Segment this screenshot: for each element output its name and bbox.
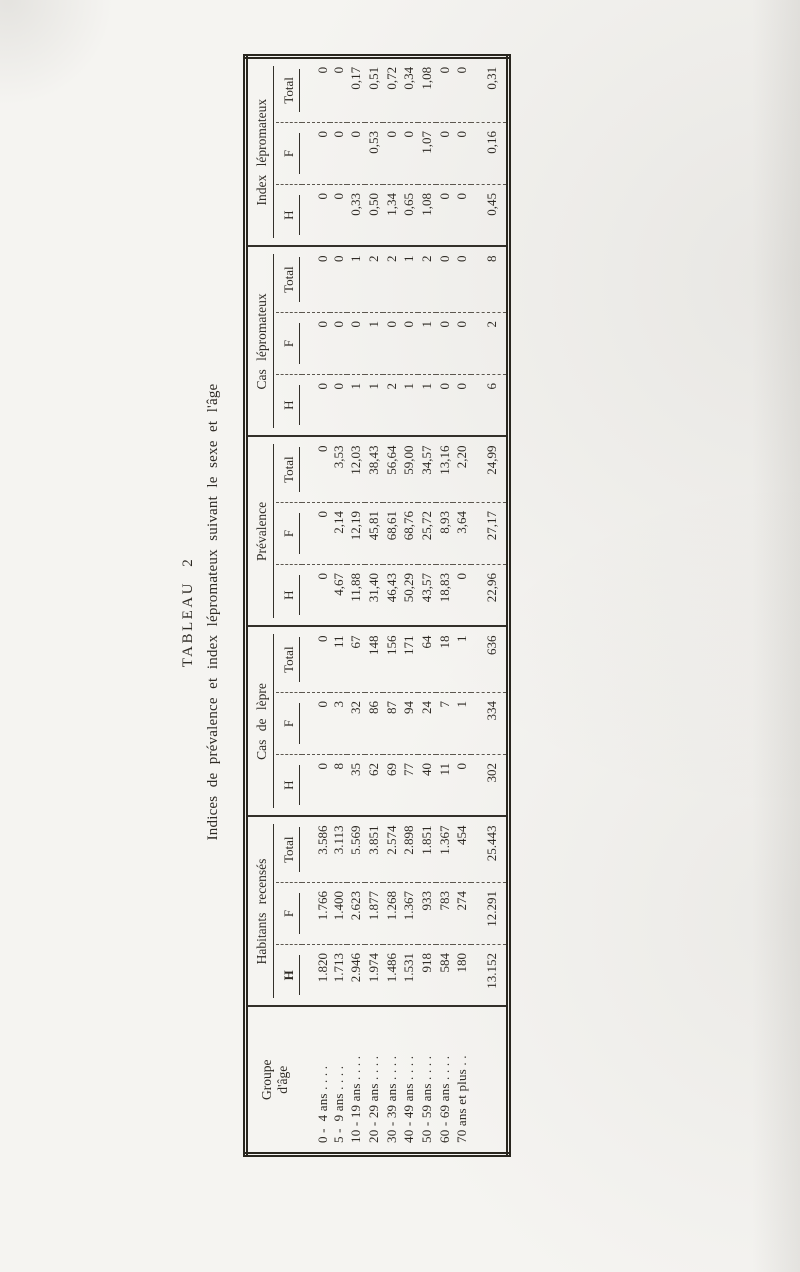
value-cell: 156: [383, 626, 401, 692]
totals-value-cell: 27,17: [471, 502, 509, 564]
subcolumn-header: Total: [276, 436, 302, 502]
value-cell: 1.851: [418, 816, 436, 882]
value-cell: 0: [400, 312, 418, 374]
value-cell: 454: [453, 816, 471, 882]
value-cell: 0: [330, 312, 348, 374]
subcolumn-header: H: [276, 374, 302, 436]
value-cell: 1.713: [330, 945, 348, 1007]
value-cell: 1.486: [383, 945, 401, 1007]
value-cell: 69: [383, 754, 401, 816]
value-cell: 1.367: [400, 883, 418, 945]
value-cell: 59,00: [400, 436, 418, 502]
table-row: 50 - 59 ans . . . .9189331.85140246443,5…: [418, 56, 436, 1154]
value-cell: 0,17: [347, 56, 365, 122]
value-cell: 0: [302, 502, 330, 564]
subcolumn-header: H: [276, 564, 302, 626]
value-cell: 94: [400, 692, 418, 754]
totals-value-cell: 636: [471, 626, 509, 692]
totals-row: 13.15212.29125.44330233463622,9627,1724,…: [471, 56, 509, 1154]
value-cell: 2: [418, 246, 436, 312]
value-cell: 0: [453, 246, 471, 312]
subcolumn-header: Total: [276, 56, 302, 122]
value-cell: 11,88: [347, 564, 365, 626]
header-row-subcolumns: HFTotalHFTotalHFTotalHFTotalHFTotal: [276, 56, 302, 1154]
value-cell: 0: [436, 312, 454, 374]
table-row: 70 ans et plus . .18027445401103,642,200…: [453, 56, 471, 1154]
value-cell: 1: [418, 312, 436, 374]
value-cell: 31,40: [365, 564, 383, 626]
value-cell: 0: [302, 374, 330, 436]
row-header-groupe-dage: Grouped'âge: [246, 1007, 303, 1155]
group-header: Prévalence: [246, 436, 277, 626]
value-cell: 50,29: [400, 564, 418, 626]
value-cell: 180: [453, 945, 471, 1007]
table-row: 20 - 29 ans . . . .1.9741.8773.851628614…: [365, 56, 383, 1154]
subcolumn-header: F: [276, 883, 302, 945]
value-cell: 0: [383, 122, 401, 184]
value-cell: 1,34: [383, 184, 401, 246]
totals-value-cell: 12.291: [471, 883, 509, 945]
value-cell: 0: [453, 56, 471, 122]
value-cell: 1.268: [383, 883, 401, 945]
value-cell: 3.113: [330, 816, 348, 882]
value-cell: 68,76: [400, 502, 418, 564]
value-cell: 25,72: [418, 502, 436, 564]
table-row: 40 - 49 ans . . . .1.5311.3672.898779417…: [400, 56, 418, 1154]
value-cell: 4,67: [330, 564, 348, 626]
value-cell: 1: [347, 246, 365, 312]
table-row: 5 - 9 ans . . . .1.7131.4003.11383114,67…: [330, 56, 348, 1154]
value-cell: 0: [347, 312, 365, 374]
table-row: 30 - 39 ans . . . .1.4861.2682.574698715…: [383, 56, 401, 1154]
group-header: Habitants recensés: [246, 816, 277, 1006]
value-cell: 0: [330, 122, 348, 184]
value-cell: 1,08: [418, 56, 436, 122]
value-cell: 2: [383, 246, 401, 312]
value-cell: 148: [365, 626, 383, 692]
age-group-cell: 10 - 19 ans . . . .: [347, 1007, 365, 1155]
value-cell: 35: [347, 754, 365, 816]
value-cell: 3,53: [330, 436, 348, 502]
value-cell: 34,57: [418, 436, 436, 502]
table-title: TABLEAU 2: [180, 67, 197, 1157]
value-cell: 67: [347, 626, 365, 692]
value-cell: 0: [400, 122, 418, 184]
value-cell: 274: [453, 883, 471, 945]
value-cell: 0: [330, 184, 348, 246]
value-cell: 0: [330, 56, 348, 122]
value-cell: 0: [453, 374, 471, 436]
value-cell: 783: [436, 883, 454, 945]
value-cell: 0: [436, 374, 454, 436]
value-cell: 1: [400, 374, 418, 436]
value-cell: 77: [400, 754, 418, 816]
value-cell: 0: [436, 122, 454, 184]
table-row: 0 - 4 ans . . . .1.8201.7663.58600000000…: [302, 56, 330, 1154]
value-cell: 2,20: [453, 436, 471, 502]
subcolumn-header: Total: [276, 626, 302, 692]
value-cell: 1: [400, 246, 418, 312]
value-cell: 0: [302, 184, 330, 246]
value-cell: 11: [436, 754, 454, 816]
value-cell: 38,43: [365, 436, 383, 502]
value-cell: 5.569: [347, 816, 365, 882]
subcolumn-header: F: [276, 122, 302, 184]
value-cell: 0,51: [365, 56, 383, 122]
value-cell: 1: [453, 692, 471, 754]
value-cell: 0: [330, 246, 348, 312]
value-cell: 11: [330, 626, 348, 692]
value-cell: 1.531: [400, 945, 418, 1007]
age-group-cell: 5 - 9 ans . . . .: [330, 1007, 348, 1155]
value-cell: 7: [436, 692, 454, 754]
group-header: Index lépromateux: [246, 56, 277, 246]
value-cell: 171: [400, 626, 418, 692]
table-header: Grouped'âgeHabitants recensésCas de lèpr…: [246, 56, 303, 1154]
value-cell: 0: [453, 184, 471, 246]
value-cell: 0,34: [400, 56, 418, 122]
value-cell: 1.820: [302, 945, 330, 1007]
value-cell: 3: [330, 692, 348, 754]
value-cell: 2: [383, 374, 401, 436]
scanned-page: TABLEAU 2 Indices de prévalence et index…: [0, 0, 800, 1272]
value-cell: 40: [418, 754, 436, 816]
value-cell: 0: [453, 312, 471, 374]
totals-value-cell: 22,96: [471, 564, 509, 626]
value-cell: 1: [347, 374, 365, 436]
value-cell: 45,81: [365, 502, 383, 564]
value-cell: 2,14: [330, 502, 348, 564]
value-cell: 68,61: [383, 502, 401, 564]
age-group-cell: 30 - 39 ans . . . .: [383, 1007, 401, 1155]
header-row-groups: Grouped'âgeHabitants recensésCas de lèpr…: [246, 56, 277, 1154]
value-cell: 1.974: [365, 945, 383, 1007]
value-cell: 43,57: [418, 564, 436, 626]
value-cell: 86: [365, 692, 383, 754]
data-table: Grouped'âgeHabitants recensésCas de lèpr…: [243, 54, 511, 1157]
totals-value-cell: 13.152: [471, 945, 509, 1007]
value-cell: 0: [302, 122, 330, 184]
age-group-cell: 50 - 59 ans . . . .: [418, 1007, 436, 1155]
subcolumn-header: H: [276, 754, 302, 816]
subcolumn-header: F: [276, 692, 302, 754]
value-cell: 8,93: [436, 502, 454, 564]
totals-value-cell: 2: [471, 312, 509, 374]
value-cell: 64: [418, 626, 436, 692]
table-row: 60 - 69 ans . . . .5847831.3671171818,83…: [436, 56, 454, 1154]
age-group-cell: 60 - 69 ans . . . .: [436, 1007, 454, 1155]
value-cell: 1: [365, 312, 383, 374]
value-cell: 24: [418, 692, 436, 754]
value-cell: 56,64: [383, 436, 401, 502]
value-cell: 933: [418, 883, 436, 945]
value-cell: 0: [453, 754, 471, 816]
totals-value-cell: 25.443: [471, 816, 509, 882]
value-cell: 18: [436, 626, 454, 692]
value-cell: 0: [383, 312, 401, 374]
value-cell: 12,03: [347, 436, 365, 502]
value-cell: 2.946: [347, 945, 365, 1007]
value-cell: 0: [453, 122, 471, 184]
age-group-cell: 0 - 4 ans . . . .: [302, 1007, 330, 1155]
row-header-line: d'âge: [275, 1008, 291, 1153]
value-cell: 12,19: [347, 502, 365, 564]
value-cell: 0: [347, 122, 365, 184]
value-cell: 0: [302, 564, 330, 626]
totals-age-cell: [471, 1007, 509, 1155]
value-cell: 1.367: [436, 816, 454, 882]
age-group-cell: 20 - 29 ans . . . .: [365, 1007, 383, 1155]
value-cell: 0: [330, 374, 348, 436]
value-cell: 1: [365, 374, 383, 436]
value-cell: 2: [365, 246, 383, 312]
value-cell: 0: [436, 184, 454, 246]
value-cell: 0: [302, 692, 330, 754]
totals-value-cell: 0,31: [471, 56, 509, 122]
rotated-table-block: TABLEAU 2 Indices de prévalence et index…: [180, 67, 527, 1157]
value-cell: 2.898: [400, 816, 418, 882]
group-header: Cas lépromateux: [246, 246, 277, 436]
value-cell: 0,65: [400, 184, 418, 246]
value-cell: 0,50: [365, 184, 383, 246]
group-header: Cas de lèpre: [246, 626, 277, 816]
row-header-line: Groupe: [259, 1008, 275, 1153]
value-cell: 1,08: [418, 184, 436, 246]
totals-value-cell: 0,45: [471, 184, 509, 246]
value-cell: 1.877: [365, 883, 383, 945]
value-cell: 2.574: [383, 816, 401, 882]
totals-value-cell: 6: [471, 374, 509, 436]
value-cell: 0: [302, 626, 330, 692]
subcolumn-header: Total: [276, 246, 302, 312]
value-cell: 62: [365, 754, 383, 816]
totals-value-cell: 302: [471, 754, 509, 816]
value-cell: 0: [302, 312, 330, 374]
table-subtitle: Indices de prévalence et index lépromate…: [205, 67, 222, 1157]
value-cell: 2.623: [347, 883, 365, 945]
value-cell: 1.400: [330, 883, 348, 945]
value-cell: 0: [302, 56, 330, 122]
value-cell: 18,83: [436, 564, 454, 626]
subcolumn-header: H: [276, 184, 302, 246]
value-cell: 8: [330, 754, 348, 816]
totals-value-cell: 24,99: [471, 436, 509, 502]
age-group-cell: 70 ans et plus . .: [453, 1007, 471, 1155]
totals-value-cell: 8: [471, 246, 509, 312]
value-cell: 0,33: [347, 184, 365, 246]
totals-value-cell: 334: [471, 692, 509, 754]
value-cell: 3,64: [453, 502, 471, 564]
subcolumn-header: Total: [276, 816, 302, 882]
value-cell: 1.766: [302, 883, 330, 945]
value-cell: 3.586: [302, 816, 330, 882]
value-cell: 1,07: [418, 122, 436, 184]
value-cell: 0: [436, 246, 454, 312]
value-cell: 46,43: [383, 564, 401, 626]
age-group-cell: 40 - 49 ans . . . .: [400, 1007, 418, 1155]
value-cell: 1: [453, 626, 471, 692]
value-cell: 0: [302, 754, 330, 816]
value-cell: 0: [302, 436, 330, 502]
table-row: 10 - 19 ans . . . .2.9462.6235.569353267…: [347, 56, 365, 1154]
value-cell: 0: [436, 56, 454, 122]
value-cell: 0,53: [365, 122, 383, 184]
value-cell: 13,16: [436, 436, 454, 502]
subcolumn-header: F: [276, 502, 302, 564]
value-cell: 1: [418, 374, 436, 436]
subcolumn-header: F: [276, 312, 302, 374]
totals-value-cell: 0,16: [471, 122, 509, 184]
value-cell: 0: [453, 564, 471, 626]
value-cell: 87: [383, 692, 401, 754]
value-cell: 3.851: [365, 816, 383, 882]
value-cell: 584: [436, 945, 454, 1007]
value-cell: 0: [302, 246, 330, 312]
value-cell: 32: [347, 692, 365, 754]
subcolumn-header: H: [276, 945, 302, 1007]
value-cell: 918: [418, 945, 436, 1007]
value-cell: 0,72: [383, 56, 401, 122]
table-body: 0 - 4 ans . . . .1.8201.7663.58600000000…: [302, 56, 509, 1154]
